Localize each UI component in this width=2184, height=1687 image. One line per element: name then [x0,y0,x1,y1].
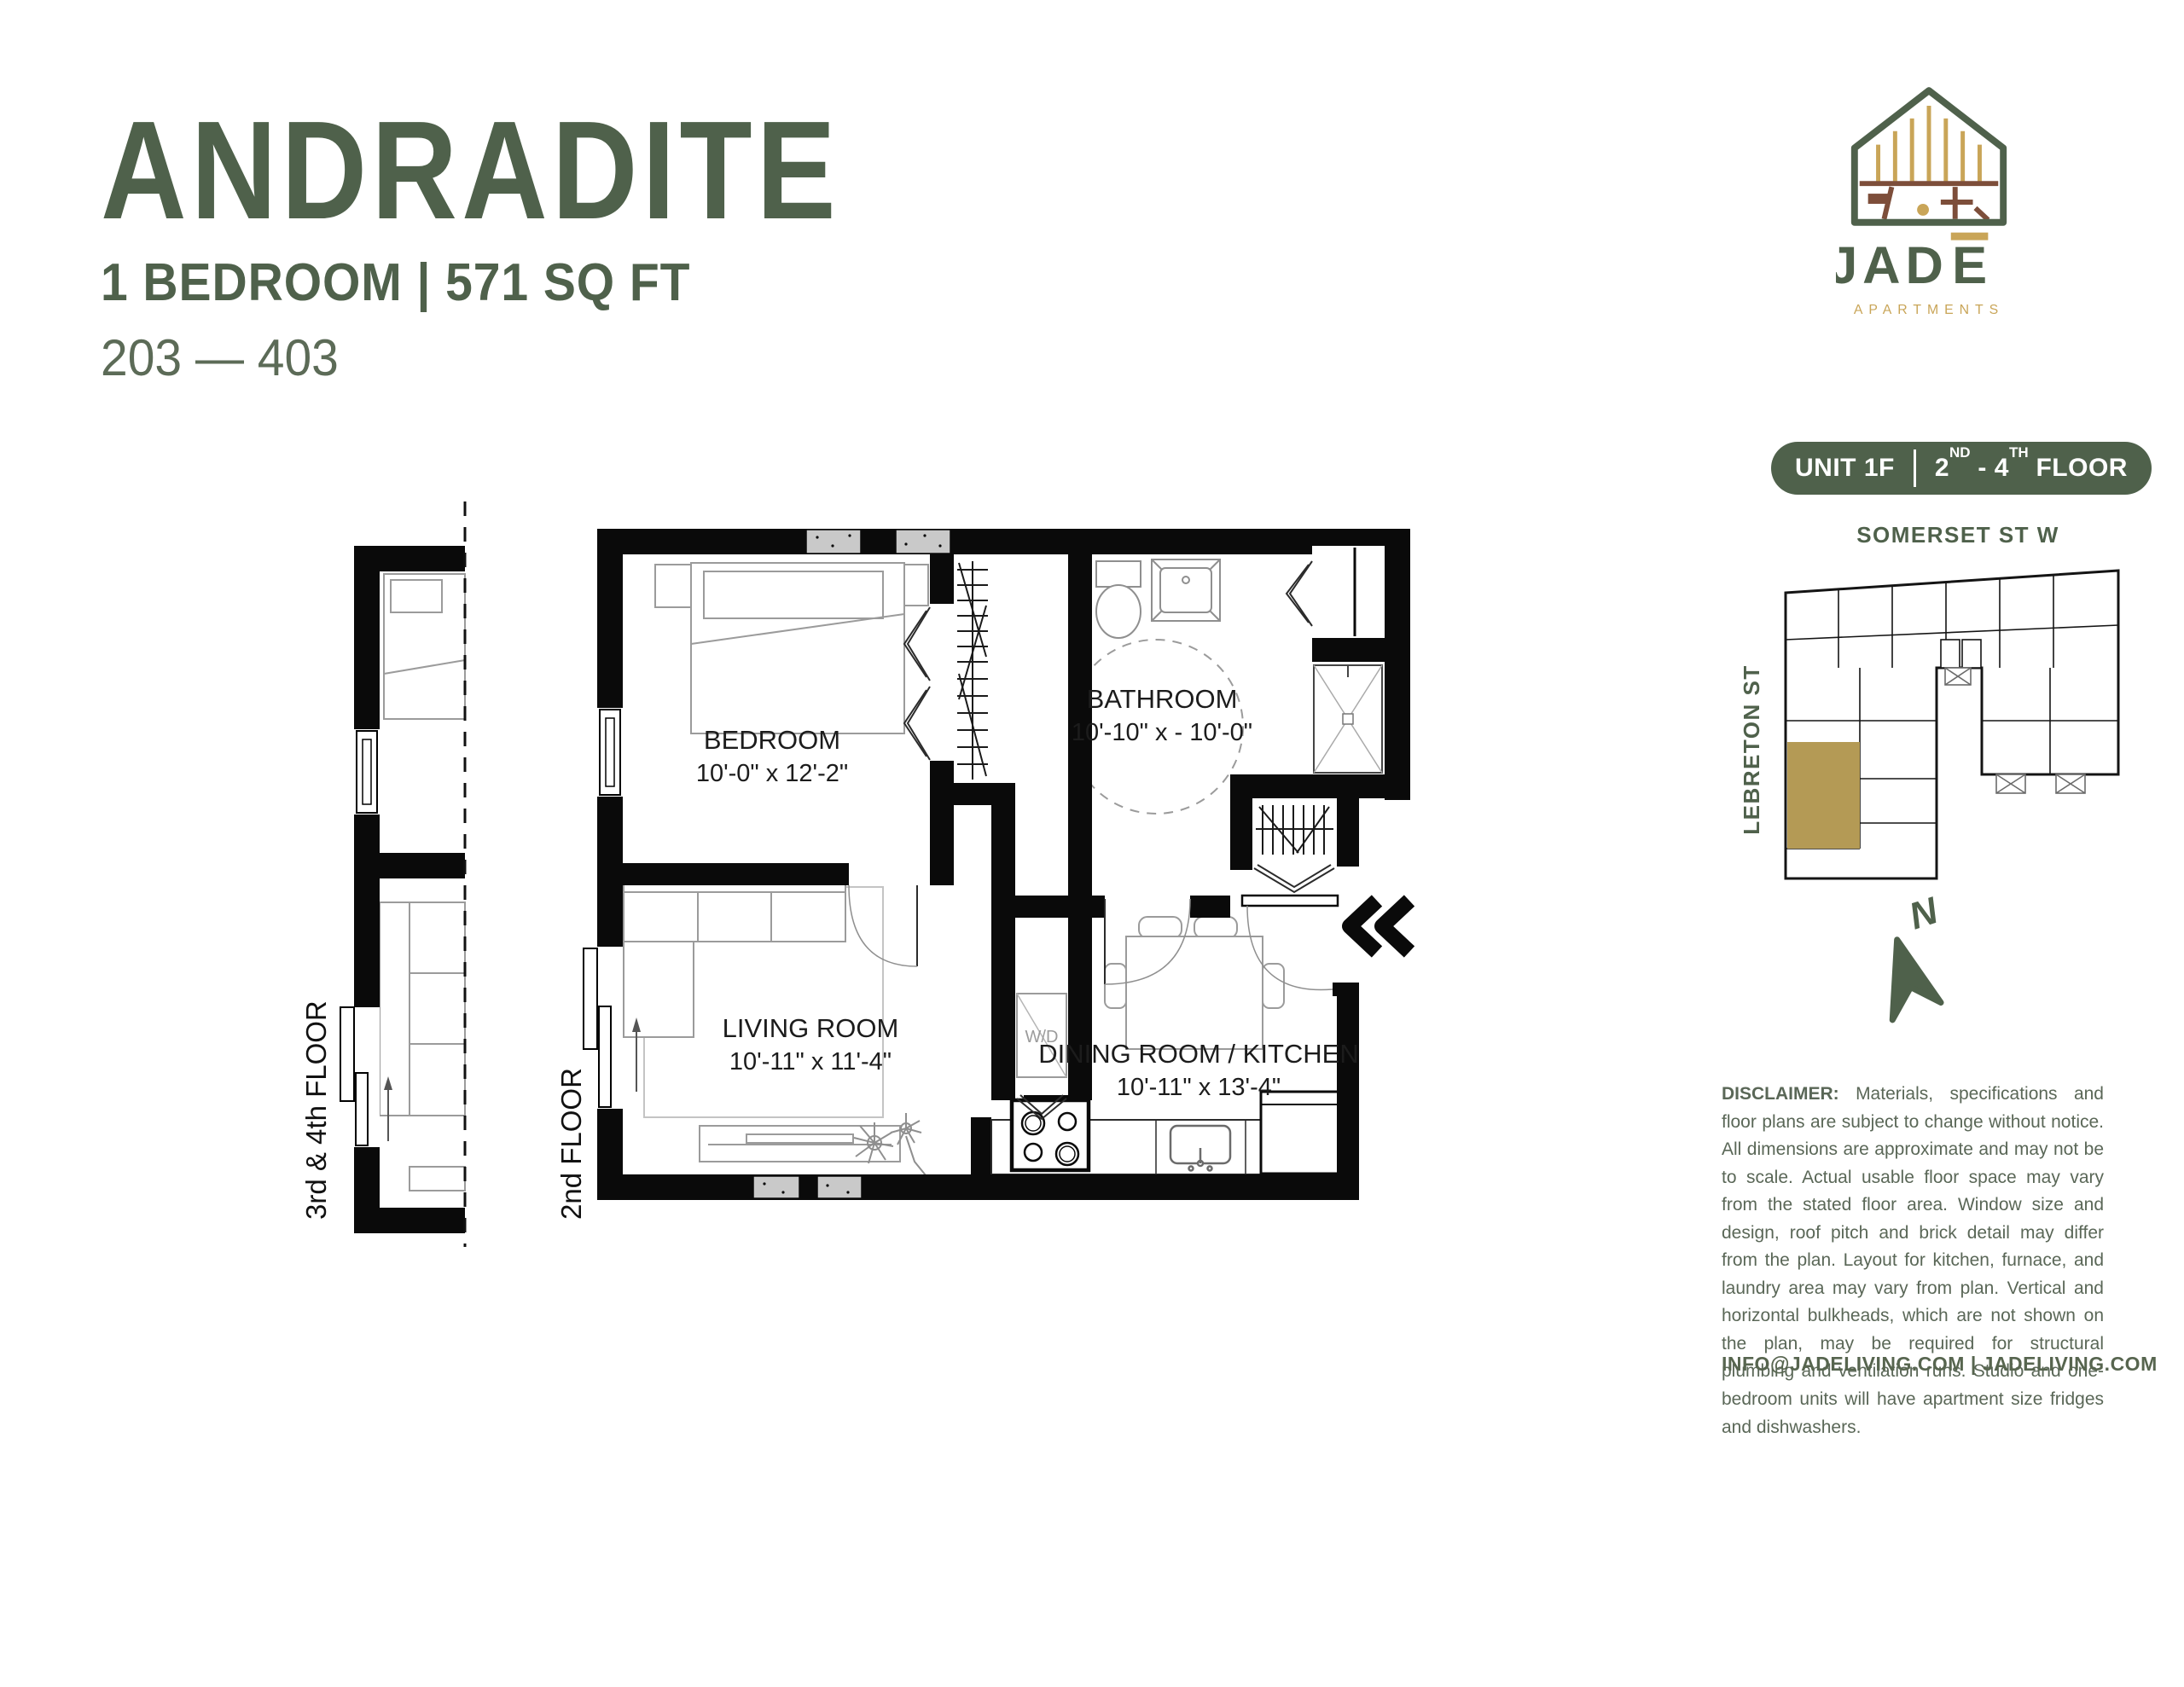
dining-table [1105,917,1284,1049]
floorplan-fragment [290,493,533,1254]
disclaimer-label: DISCLAIMER: [1722,1084,1839,1104]
living-room-label: LIVING ROOM [723,1013,899,1043]
badge-floor: 2ND - 4TH FLOOR [1935,454,2128,483]
jade-logo: JAD E APARTMENTS [1836,84,2022,319]
toilet [1096,561,1141,638]
floorplan-sheet: ANDRADITE 1 BEDROOM | 571 SQ FT 203 — 40… [0,0,2184,1687]
bathroom-sink [1152,559,1220,621]
unit-range: 203 — 403 [101,328,927,387]
bedroom-closet-hangers [957,561,988,780]
fridge [1261,1092,1339,1174]
contact-line: INFO@JADELIVING.COM | JADELIVING.COM [1722,1353,2158,1376]
nightstand [655,565,691,607]
dining-kitchen-label: DINING ROOM / KITCHEN [1038,1039,1358,1069]
living-room-dims: 10'-11" x 11'-4" [729,1048,892,1075]
badge-unit: UNIT 1F [1795,454,1895,483]
bathroom-label: BATHROOM [1087,684,1238,714]
logo-tagline: APARTMENTS [1854,303,2004,317]
house-icon [1855,90,2003,223]
street-label-somerset: SOMERSET ST W [1766,522,2150,548]
highlighted-unit [1787,742,1860,849]
alcove [1312,546,1385,638]
bedroom-label: BEDROOM [704,725,840,755]
logo-wordmark-last: E [1952,236,1987,295]
unit-summary: 1 BEDROOM | 571 SQ FT [101,252,901,313]
badge-divider [1914,449,1916,487]
disclaimer-body: Materials, specifications and floor plan… [1722,1084,2104,1437]
logo-macron [1951,233,1989,241]
bedroom-dims: 10'-0" x 12'-2" [696,760,848,787]
page-title: ANDRADITE [101,101,840,241]
unit-floor-badge: UNIT 1F 2ND - 4TH FLOOR [1771,442,2152,495]
nightstand [903,565,928,606]
kitchen-sink [1170,1126,1230,1171]
entry-chevrons-icon [1350,901,1409,952]
bathroom-dims: 10'-10" x - 10'-0" [1072,719,1252,746]
doors [849,561,1338,1119]
logo-wordmark: JAD E APARTMENTS [1836,233,2004,317]
dining-kitchen-dims: 10'-11" x 13'-4" [1117,1074,1281,1101]
disclaimer: DISCLAIMER: Materials, specifications an… [1722,1081,2104,1441]
street-label-lebreton: LEBRETON ST [1739,635,1765,865]
north-letter: N [1904,894,1944,938]
floorplan-main: W/D [580,529,1429,1203]
location-map [1766,559,2150,917]
logo-wordmark-prefix: JAD [1836,236,1949,295]
header: ANDRADITE 1 BEDROOM | 571 SQ FT 203 — 40… [101,101,971,387]
shower [1314,665,1382,773]
north-pointer [1873,933,1942,1020]
entry-closet-hangers [1256,805,1333,855]
north-arrow-icon: N [1873,894,1955,1026]
